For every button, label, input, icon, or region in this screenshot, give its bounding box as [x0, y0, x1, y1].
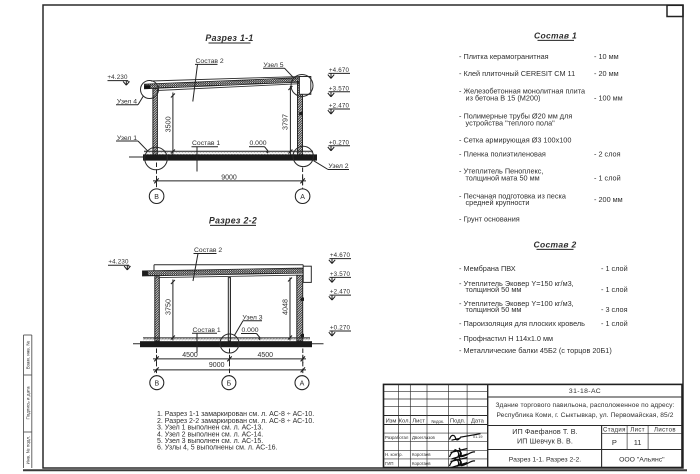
svg-text:Состав 2: Состав 2	[196, 58, 224, 65]
svg-text:Лист: Лист	[412, 418, 425, 424]
svg-text:толщиной 50 мм: толщиной 50 мм	[466, 305, 522, 314]
svg-text:11: 11	[634, 438, 642, 447]
svg-text:6. Узлы 4, 5 выполнены см. л.: 6. Узлы 4, 5 выполнены см. л. АС-16.	[157, 445, 277, 452]
svg-text:Лист: Лист	[630, 428, 645, 434]
svg-text:- Сетка армирующая Ø3 100х100: - Сетка армирующая Ø3 100х100	[459, 135, 571, 144]
svg-text:+4.230: +4.230	[108, 259, 129, 266]
svg-text:- Пароизоляция для плоских кро: - Пароизоляция для плоских кровель	[459, 319, 585, 328]
svg-text:Узел 3: Узел 3	[242, 314, 262, 321]
svg-text:А: А	[300, 194, 305, 201]
svg-text:31-18-АС: 31-18-АС	[569, 388, 601, 395]
svg-text:Инв. № подл.: Инв. № подл.	[25, 436, 30, 465]
svg-text:Листов: Листов	[654, 428, 676, 434]
svg-text:А: А	[300, 380, 305, 387]
svg-text:ИП Шевчук В. В.: ИП Шевчук В. В.	[517, 436, 573, 445]
svg-text:- 10 мм: - 10 мм	[594, 52, 619, 61]
svg-text:Изм: Изм	[386, 418, 397, 424]
svg-text:№док.: №док.	[431, 419, 444, 424]
svg-text:- 2 слоя: - 2 слоя	[594, 149, 621, 158]
svg-text:Б: Б	[227, 380, 232, 387]
svg-text:3797: 3797	[281, 114, 290, 130]
svg-text:0.000: 0.000	[250, 140, 267, 147]
svg-text:ООО "Альянс": ООО "Альянс"	[619, 456, 665, 463]
svg-text:+2.470: +2.470	[330, 289, 351, 296]
svg-text:толщиной 50 мм: толщиной 50 мм	[466, 285, 522, 294]
svg-text:Состав 2: Состав 2	[534, 239, 577, 249]
svg-text:- 1 слой: - 1 слой	[601, 319, 628, 328]
svg-text:ИП Фаефанов Т. В.: ИП Фаефанов Т. В.	[512, 427, 578, 436]
svg-text:9000: 9000	[221, 174, 237, 181]
svg-text:4048: 4048	[280, 299, 289, 315]
svg-text:- 1 слой: - 1 слой	[594, 173, 621, 182]
svg-text:Дата: Дата	[471, 418, 485, 424]
svg-text:+4.230: +4.230	[107, 74, 128, 81]
svg-text:- Клей плиточный CERESIT СМ 11: - Клей плиточный CERESIT СМ 11	[459, 69, 575, 78]
svg-text:толщиной мата 50 мм: толщиной мата 50 мм	[466, 173, 540, 182]
svg-text:3750: 3750	[164, 299, 173, 315]
svg-text:В: В	[154, 380, 159, 387]
svg-text:ГИП: ГИП	[385, 461, 394, 466]
svg-text:устройства "теплого пола": устройства "теплого пола"	[466, 118, 556, 127]
svg-text:4500: 4500	[182, 352, 198, 359]
svg-text:Разрез 1-1. Разрез 2-2.: Разрез 1-1. Разрез 2-2.	[509, 456, 582, 463]
svg-text:- 20 мм: - 20 мм	[594, 69, 619, 78]
svg-text:Разрез 2-2: Разрез 2-2	[209, 215, 257, 225]
svg-text:Состав 2: Состав 2	[194, 247, 222, 254]
svg-text:Разработал: Разработал	[385, 435, 409, 440]
svg-text:Двоеглазов: Двоеглазов	[412, 435, 436, 440]
svg-text:0.000: 0.000	[242, 327, 259, 334]
svg-text:4500: 4500	[258, 352, 274, 359]
svg-text:Состав 1: Состав 1	[193, 327, 221, 334]
svg-text:Взам. инв. №: Взам. инв. №	[25, 341, 30, 370]
svg-text:Стадия: Стадия	[603, 428, 626, 434]
svg-text:Коротаев: Коротаев	[412, 452, 431, 457]
svg-text:Здание торгового павильона, ра: Здание торгового павильона, расположенно…	[495, 402, 674, 409]
svg-text:- Пленка полиэтиленовая: - Пленка полиэтиленовая	[459, 149, 546, 158]
svg-text:- 200 мм: - 200 мм	[594, 195, 623, 204]
svg-text:- 100 мм: - 100 мм	[594, 93, 623, 102]
svg-text:- Грунт основания: - Грунт основания	[459, 214, 520, 223]
svg-text:Кол.: Кол.	[399, 418, 411, 424]
svg-text:Подпись и дата: Подпись и дата	[25, 386, 30, 419]
svg-text:- 1 слой: - 1 слой	[601, 285, 628, 294]
svg-text:+0.270: +0.270	[330, 324, 351, 331]
svg-text:Подп.: Подп.	[450, 418, 466, 424]
svg-text:средней крупности: средней крупности	[466, 198, 530, 207]
svg-text:Н. контр.: Н. контр.	[385, 452, 403, 457]
svg-text:Разрез 1-1: Разрез 1-1	[205, 33, 253, 43]
svg-text:- Профнастил Н 114х1.0 мм: - Профнастил Н 114х1.0 мм	[459, 334, 553, 343]
svg-text:Коротаев: Коротаев	[412, 461, 431, 466]
svg-text:01.19: 01.19	[473, 435, 483, 439]
svg-text:- Мембрана ПВХ: - Мембрана ПВХ	[459, 264, 516, 273]
svg-text:Республика Коми, г. Сыктывкар,: Республика Коми, г. Сыктывкар, ул. Перво…	[496, 411, 673, 419]
svg-text:+3.570: +3.570	[330, 271, 351, 278]
svg-text:В: В	[154, 194, 159, 201]
svg-text:Состав 1: Состав 1	[534, 30, 577, 40]
svg-text:- 1 слой: - 1 слой	[601, 264, 628, 273]
svg-text:из бетона В 15 (М200): из бетона В 15 (М200)	[466, 93, 541, 102]
svg-text:- Плитка керамогранитная: - Плитка керамогранитная	[459, 52, 549, 61]
svg-text:Р: Р	[612, 438, 617, 447]
svg-text:9000: 9000	[209, 362, 225, 369]
svg-text:- 3 слоя: - 3 слоя	[601, 305, 628, 314]
svg-text:- Металлические балки 45Б2 (с: - Металлические балки 45Б2 (с торцов 20Б…	[459, 346, 612, 355]
svg-text:3500: 3500	[164, 116, 173, 132]
svg-text:+4.670: +4.670	[330, 252, 351, 259]
svg-text:Состав 1: Состав 1	[192, 140, 220, 147]
